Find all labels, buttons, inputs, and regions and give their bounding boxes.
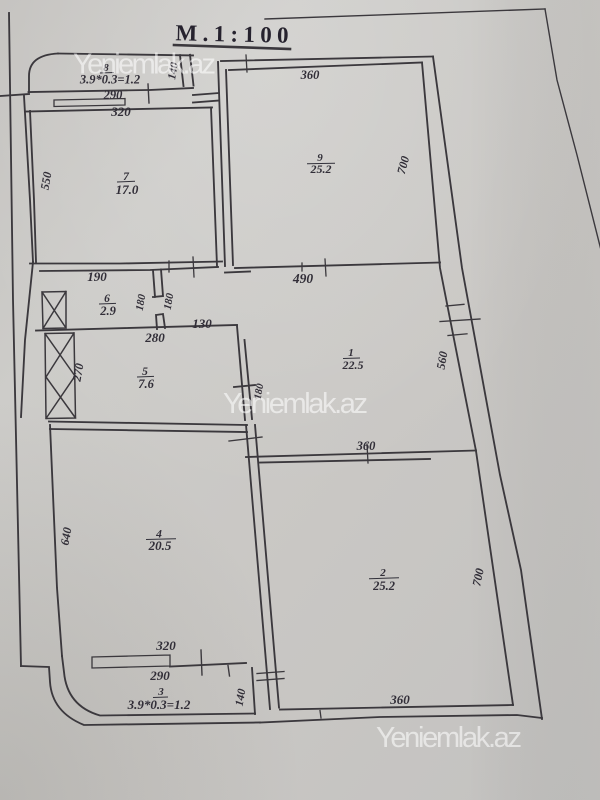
svg-text:17.0: 17.0 — [116, 182, 139, 197]
svg-text:130: 130 — [192, 316, 212, 331]
svg-text:7.6: 7.6 — [138, 377, 154, 391]
svg-text:2.9: 2.9 — [99, 304, 116, 318]
svg-text:490: 490 — [292, 271, 314, 286]
svg-text:290: 290 — [149, 668, 170, 683]
svg-text:3.9*0.3=1.2: 3.9*0.3=1.2 — [127, 697, 191, 712]
svg-text:320: 320 — [155, 638, 176, 653]
svg-text:25.2: 25.2 — [310, 162, 332, 176]
svg-text:190: 190 — [87, 269, 107, 284]
svg-text:280: 280 — [144, 330, 165, 345]
svg-text:290: 290 — [103, 88, 124, 102]
svg-text:320: 320 — [110, 104, 131, 119]
svg-text:Yeniemlak.az: Yeniemlak.az — [73, 49, 216, 81]
svg-text:2: 2 — [379, 567, 386, 579]
svg-text:25.2: 25.2 — [372, 579, 395, 593]
svg-text:20.5: 20.5 — [148, 538, 172, 553]
svg-text:Yeniemlak.az: Yeniemlak.az — [223, 388, 368, 420]
svg-text:22.5: 22.5 — [342, 358, 364, 372]
svg-text:360: 360 — [300, 68, 321, 82]
svg-text:360: 360 — [356, 439, 377, 453]
svg-text:Yeniemlak.az: Yeniemlak.az — [376, 722, 522, 754]
svg-text:360: 360 — [389, 692, 410, 707]
